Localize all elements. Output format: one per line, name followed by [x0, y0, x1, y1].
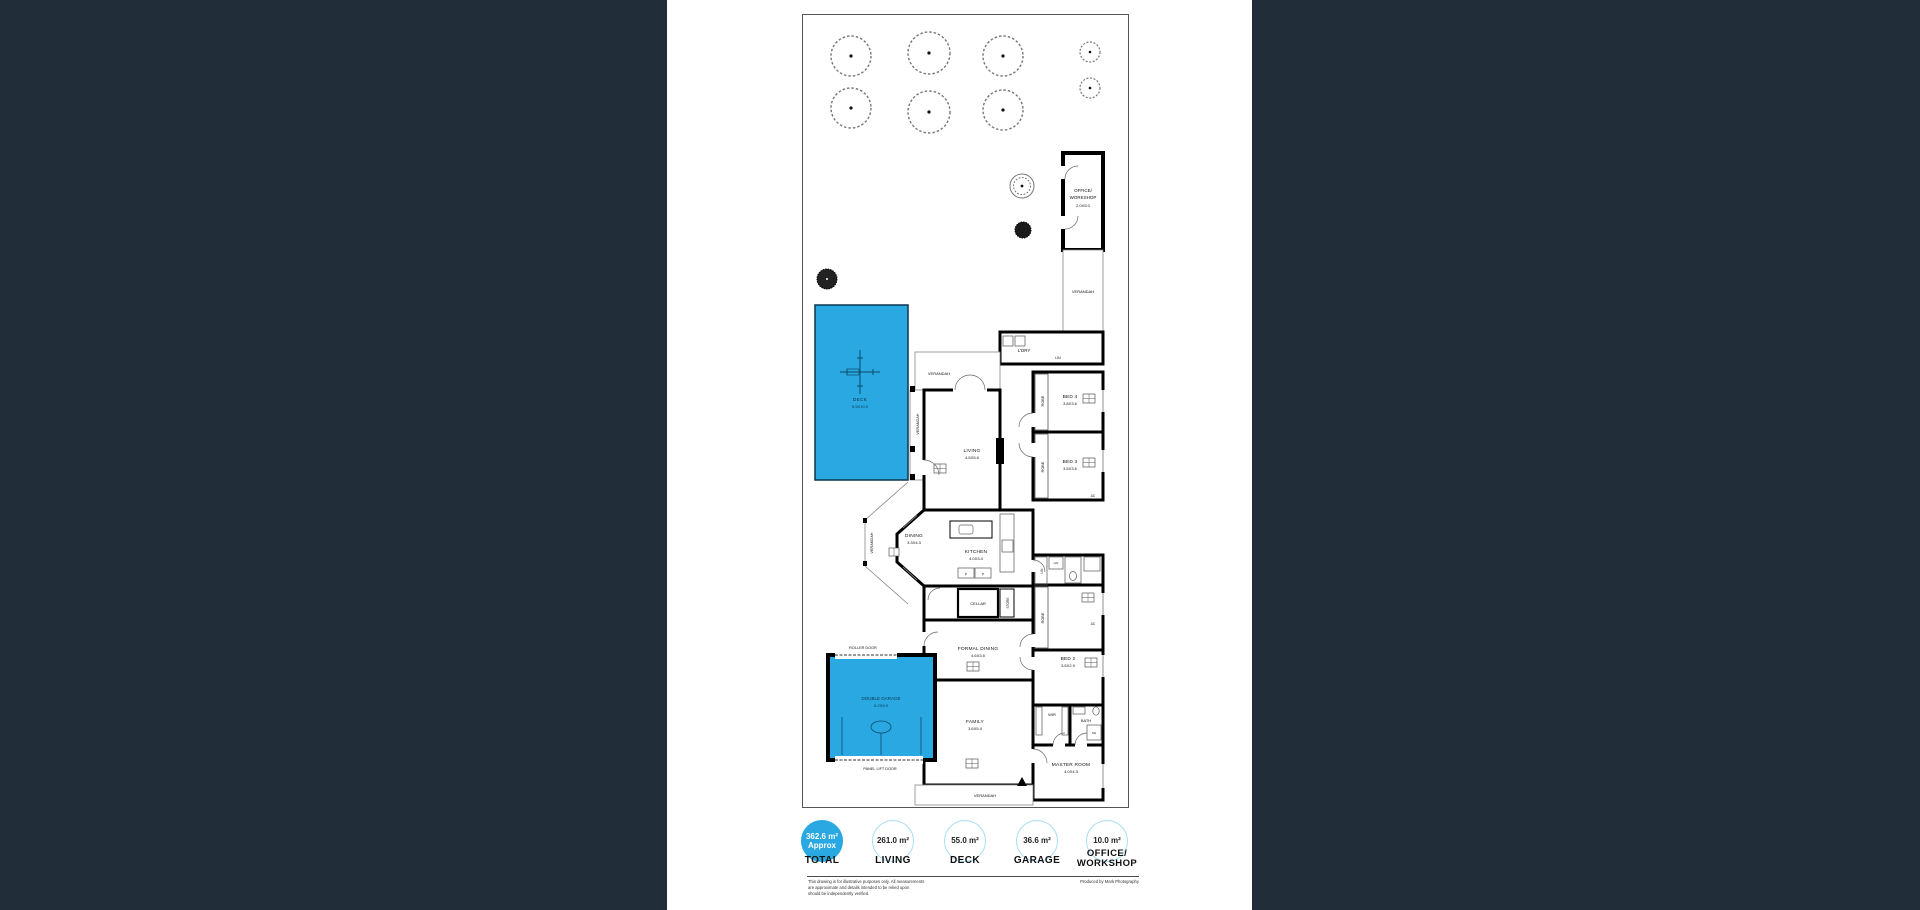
verandah-label-top: VERANDAH: [928, 371, 950, 376]
room-formal-dining: FORMAL DINING 4.6X3.5: [922, 620, 1033, 680]
room-dims-formal-dining: 4.6X3.5: [971, 653, 986, 658]
badge-total-qualifier: Approx: [808, 841, 836, 850]
window-symbol: [966, 759, 978, 768]
room-dims-office: 2.0X5.0: [1076, 203, 1091, 208]
verandah-label-left: VERANDAH: [916, 413, 920, 434]
tree-icons: [817, 32, 1100, 289]
room-label-bed3: BED 3: [1063, 459, 1078, 465]
label-sh: SH: [1092, 731, 1096, 735]
room-label-office-2: WORKSHOP: [1070, 195, 1097, 200]
room-dims-deck: 5.5X10.0: [852, 404, 869, 409]
label-ac-1: AC: [1091, 494, 1096, 498]
label-robe-middle: ROBE: [1041, 612, 1045, 623]
room-label-bed4: BED 4: [1063, 394, 1078, 400]
verandah-label-bay: VERANDAH: [870, 532, 874, 553]
window-symbol: [967, 662, 979, 671]
window-symbol: [1083, 458, 1095, 467]
garage-area: ROLLER DOOR PANEL LIFT DOOR DOUBLE GARAG…: [828, 646, 935, 771]
window-symbol: [1082, 593, 1094, 602]
screenshot-root: { "colors": { "background": "#212d38", "…: [0, 0, 1920, 910]
credit-text: Produced by Mark Photography: [1039, 879, 1139, 884]
room-label-kitchen: KITCHEN: [965, 549, 988, 555]
room-dims-kitchen: 4.0X3.4: [969, 556, 984, 561]
room-dims-garage: 6.2X5.9: [874, 703, 889, 708]
dining-kitchen: DINING 3.3X4.3 KITCHEN 4.0X3.4 DW P P: [889, 510, 1033, 586]
room-dims-bed3: 3.5X3.6: [1063, 466, 1078, 471]
room-label-master: MASTER ROOM: [1052, 762, 1090, 768]
room-label-living: LIVING: [964, 448, 981, 454]
room-dims-dining: 3.3X4.3: [907, 540, 922, 545]
floorplan-page: OFFICE/ WORKSHOP 2.0X5.0 VERANDAH: [667, 0, 1252, 910]
footer-divider: [807, 876, 1139, 877]
room-label-store: STORE: [1006, 598, 1010, 609]
badge-living-value: 261.0 m²: [877, 836, 909, 845]
fireplace: [996, 438, 1004, 464]
room-dims-bed4: 3.8X3.6: [1063, 401, 1078, 406]
room-label-formal-dining: FORMAL DINING: [958, 646, 999, 652]
window-symbol: [1083, 394, 1095, 403]
badge-garage-value: 36.6 m²: [1023, 836, 1051, 845]
verandah-label-right: VERANDAH: [1072, 289, 1094, 294]
label-robe-bed4: ROBE: [1041, 395, 1045, 406]
deck-area: DECK 5.5X10.0: [815, 305, 908, 480]
badge-label-office: OFFICE/ WORKSHOP: [1065, 849, 1149, 869]
room-label-office-1: OFFICE/: [1074, 188, 1092, 193]
badge-office-value: 10.0 m²: [1093, 836, 1121, 845]
room-label-cellar: CELLAR: [970, 601, 986, 606]
room-label-bed2: BED 2: [1061, 656, 1076, 662]
label-robe-bed3: ROBE: [1041, 461, 1045, 472]
label-lin-top: LIN: [1055, 356, 1061, 360]
badge-label-office-line2: WORKSHOP: [1065, 859, 1149, 869]
label-roller-door: ROLLER DOOR: [849, 646, 877, 650]
room-label-deck: DECK: [853, 397, 868, 403]
office-workshop: OFFICE/ WORKSHOP 2.0X5.0 VERANDAH: [1060, 153, 1103, 332]
window-symbol: [889, 548, 899, 556]
room-dims-living: 4.5X5.6: [965, 455, 980, 460]
label-lin-2: LIN: [1054, 561, 1059, 565]
floorplan-drawing: OFFICE/ WORKSHOP 2.0X5.0 VERANDAH: [667, 0, 1252, 910]
room-label-family: FAMILY: [966, 719, 985, 725]
room-dims-master: 4.0X4.3: [1064, 769, 1079, 774]
badge-deck-value: 55.0 m²: [951, 836, 979, 845]
label-panel-lift-door: PANEL LIFT DOOR: [863, 767, 897, 771]
cellar-band: CELLAR STORE: [924, 586, 1033, 620]
verandah-label-bottom: VERANDAH: [974, 793, 996, 798]
room-label-dining: DINING: [905, 533, 923, 539]
room-label-ldry: L'DRY: [1018, 348, 1031, 353]
label-ac-2: AC: [1091, 622, 1096, 626]
kitchen-island: [950, 521, 992, 538]
badge-total-value: 362.6 m²: [806, 832, 838, 841]
label-pantry-1: P: [965, 573, 967, 577]
room-label-garage: DOUBLE GARAGE: [861, 696, 900, 701]
room-label-bath: BATH: [1081, 718, 1091, 723]
window-symbol: [1085, 658, 1097, 667]
room-dims-family: 3.6X5.4: [968, 726, 983, 731]
room-label-wir: WIR: [1048, 712, 1056, 717]
living-wing: VERANDAH VERANDAH LIVING 4.5X5.6: [910, 352, 1004, 510]
disclaimer-text: This drawing is for illustrative purpose…: [808, 879, 958, 897]
label-pantry-2: P: [982, 573, 984, 577]
room-dims-bed2: 3.5X2.9: [1061, 663, 1076, 668]
label-lin-vert: LIN: [1040, 568, 1044, 574]
